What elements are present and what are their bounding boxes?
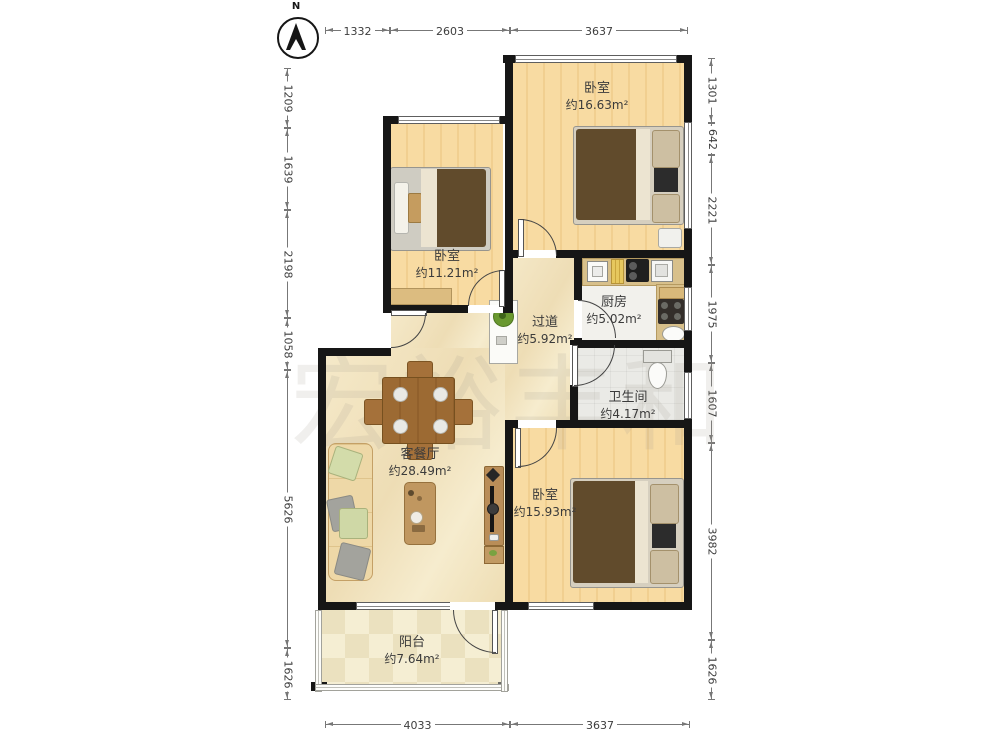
tv-knob	[487, 503, 499, 515]
balcony-glazing	[501, 610, 508, 692]
cutting-board	[659, 287, 685, 299]
dim-top-2: 2603	[390, 24, 510, 38]
cooktop-burner	[661, 302, 668, 309]
wall	[383, 116, 391, 313]
compass-north-label: N	[286, 1, 306, 12]
dining-chair	[452, 399, 473, 425]
window	[684, 122, 692, 229]
plate	[433, 387, 448, 402]
window	[684, 287, 692, 331]
cabinet-item	[496, 336, 507, 345]
door-opening	[450, 602, 495, 610]
bed-pillow	[650, 550, 679, 584]
bed-blanket	[576, 129, 636, 220]
room-label-balcony: 阳台 约7.64m²	[384, 635, 439, 667]
floorplan-canvas: 1332 2603 3637 4033 3637 1209 1639 2198 …	[0, 0, 1000, 750]
window	[515, 55, 677, 63]
dim-left-6: 1626	[281, 648, 295, 700]
balcony-glazing	[315, 684, 509, 691]
dim-right-6: 3982	[705, 443, 719, 640]
stool	[658, 228, 682, 248]
room-label-bathroom: 卫生间 约4.17m²	[600, 390, 655, 422]
plant-center	[499, 312, 506, 319]
bed-sheet	[636, 129, 650, 220]
dim-bottom-2: 3637	[510, 718, 690, 732]
door-opening	[468, 305, 503, 313]
nightstand	[652, 524, 676, 548]
dim-right-1: 1301	[705, 58, 719, 123]
dim-left-2: 1639	[281, 128, 295, 210]
room-label-bedroom-bottom-right: 卧室 约15.93m²	[514, 488, 577, 520]
bed-sheet	[635, 481, 648, 583]
room-label-kitchen: 厨房 约5.02m²	[586, 295, 641, 327]
coffee-table-item	[408, 490, 414, 496]
dim-bottom-1: 4033	[325, 718, 510, 732]
coffee-table-item	[412, 525, 425, 532]
room-label-bedroom-left: 卧室 约11.21m²	[416, 249, 479, 281]
plate	[393, 387, 408, 402]
plant	[489, 550, 497, 556]
cooktop-burner	[674, 313, 681, 320]
window	[398, 116, 500, 124]
dresser	[390, 288, 452, 305]
stove-burner	[629, 262, 637, 270]
bed-pillow	[652, 194, 680, 223]
dim-right-2: 642	[705, 123, 719, 155]
bed-pillow	[652, 130, 680, 168]
dim-right-7: 1626	[705, 640, 719, 700]
dim-right-3: 2221	[705, 155, 719, 265]
window	[528, 602, 594, 610]
cutting-board	[611, 259, 624, 284]
bed-sheet	[421, 169, 437, 247]
washing-machine-door	[655, 264, 668, 277]
room-label-living-dining: 客餐厅 约28.49m²	[389, 447, 452, 479]
cooktop-burner	[674, 302, 681, 309]
bed-blanket	[437, 169, 486, 247]
wall	[318, 348, 391, 356]
cooktop-burner	[661, 313, 668, 320]
bed-pillow	[650, 484, 679, 524]
window	[684, 372, 692, 419]
dim-top-1: 1332	[325, 24, 390, 38]
plate	[393, 419, 408, 434]
nightstand	[654, 168, 678, 192]
room-label-hallway: 过道 约5.92m²	[517, 315, 572, 347]
sofa-pillow	[339, 508, 368, 539]
wall	[318, 348, 326, 610]
coffee-table-item	[410, 511, 423, 524]
dim-left-3: 2198	[281, 210, 295, 318]
stove-burner	[629, 272, 637, 280]
coffee-table-item	[417, 496, 422, 501]
kitchen-sink-basin	[592, 266, 603, 277]
balcony-glazing	[315, 610, 322, 692]
wall	[505, 420, 513, 602]
dim-left-1: 1209	[281, 68, 295, 128]
door-opening	[518, 420, 556, 428]
wall	[505, 55, 513, 313]
bed-blanket	[573, 481, 635, 583]
bed-pillow	[394, 182, 409, 234]
window	[356, 602, 452, 610]
bed-pillow	[408, 193, 422, 223]
compass-arrow-notch	[290, 39, 302, 50]
dim-top-3: 3637	[510, 24, 688, 38]
tv-stand-slot	[489, 534, 499, 541]
plate	[433, 419, 448, 434]
room-label-bedroom-top-right: 卧室 约16.63m²	[566, 81, 629, 113]
